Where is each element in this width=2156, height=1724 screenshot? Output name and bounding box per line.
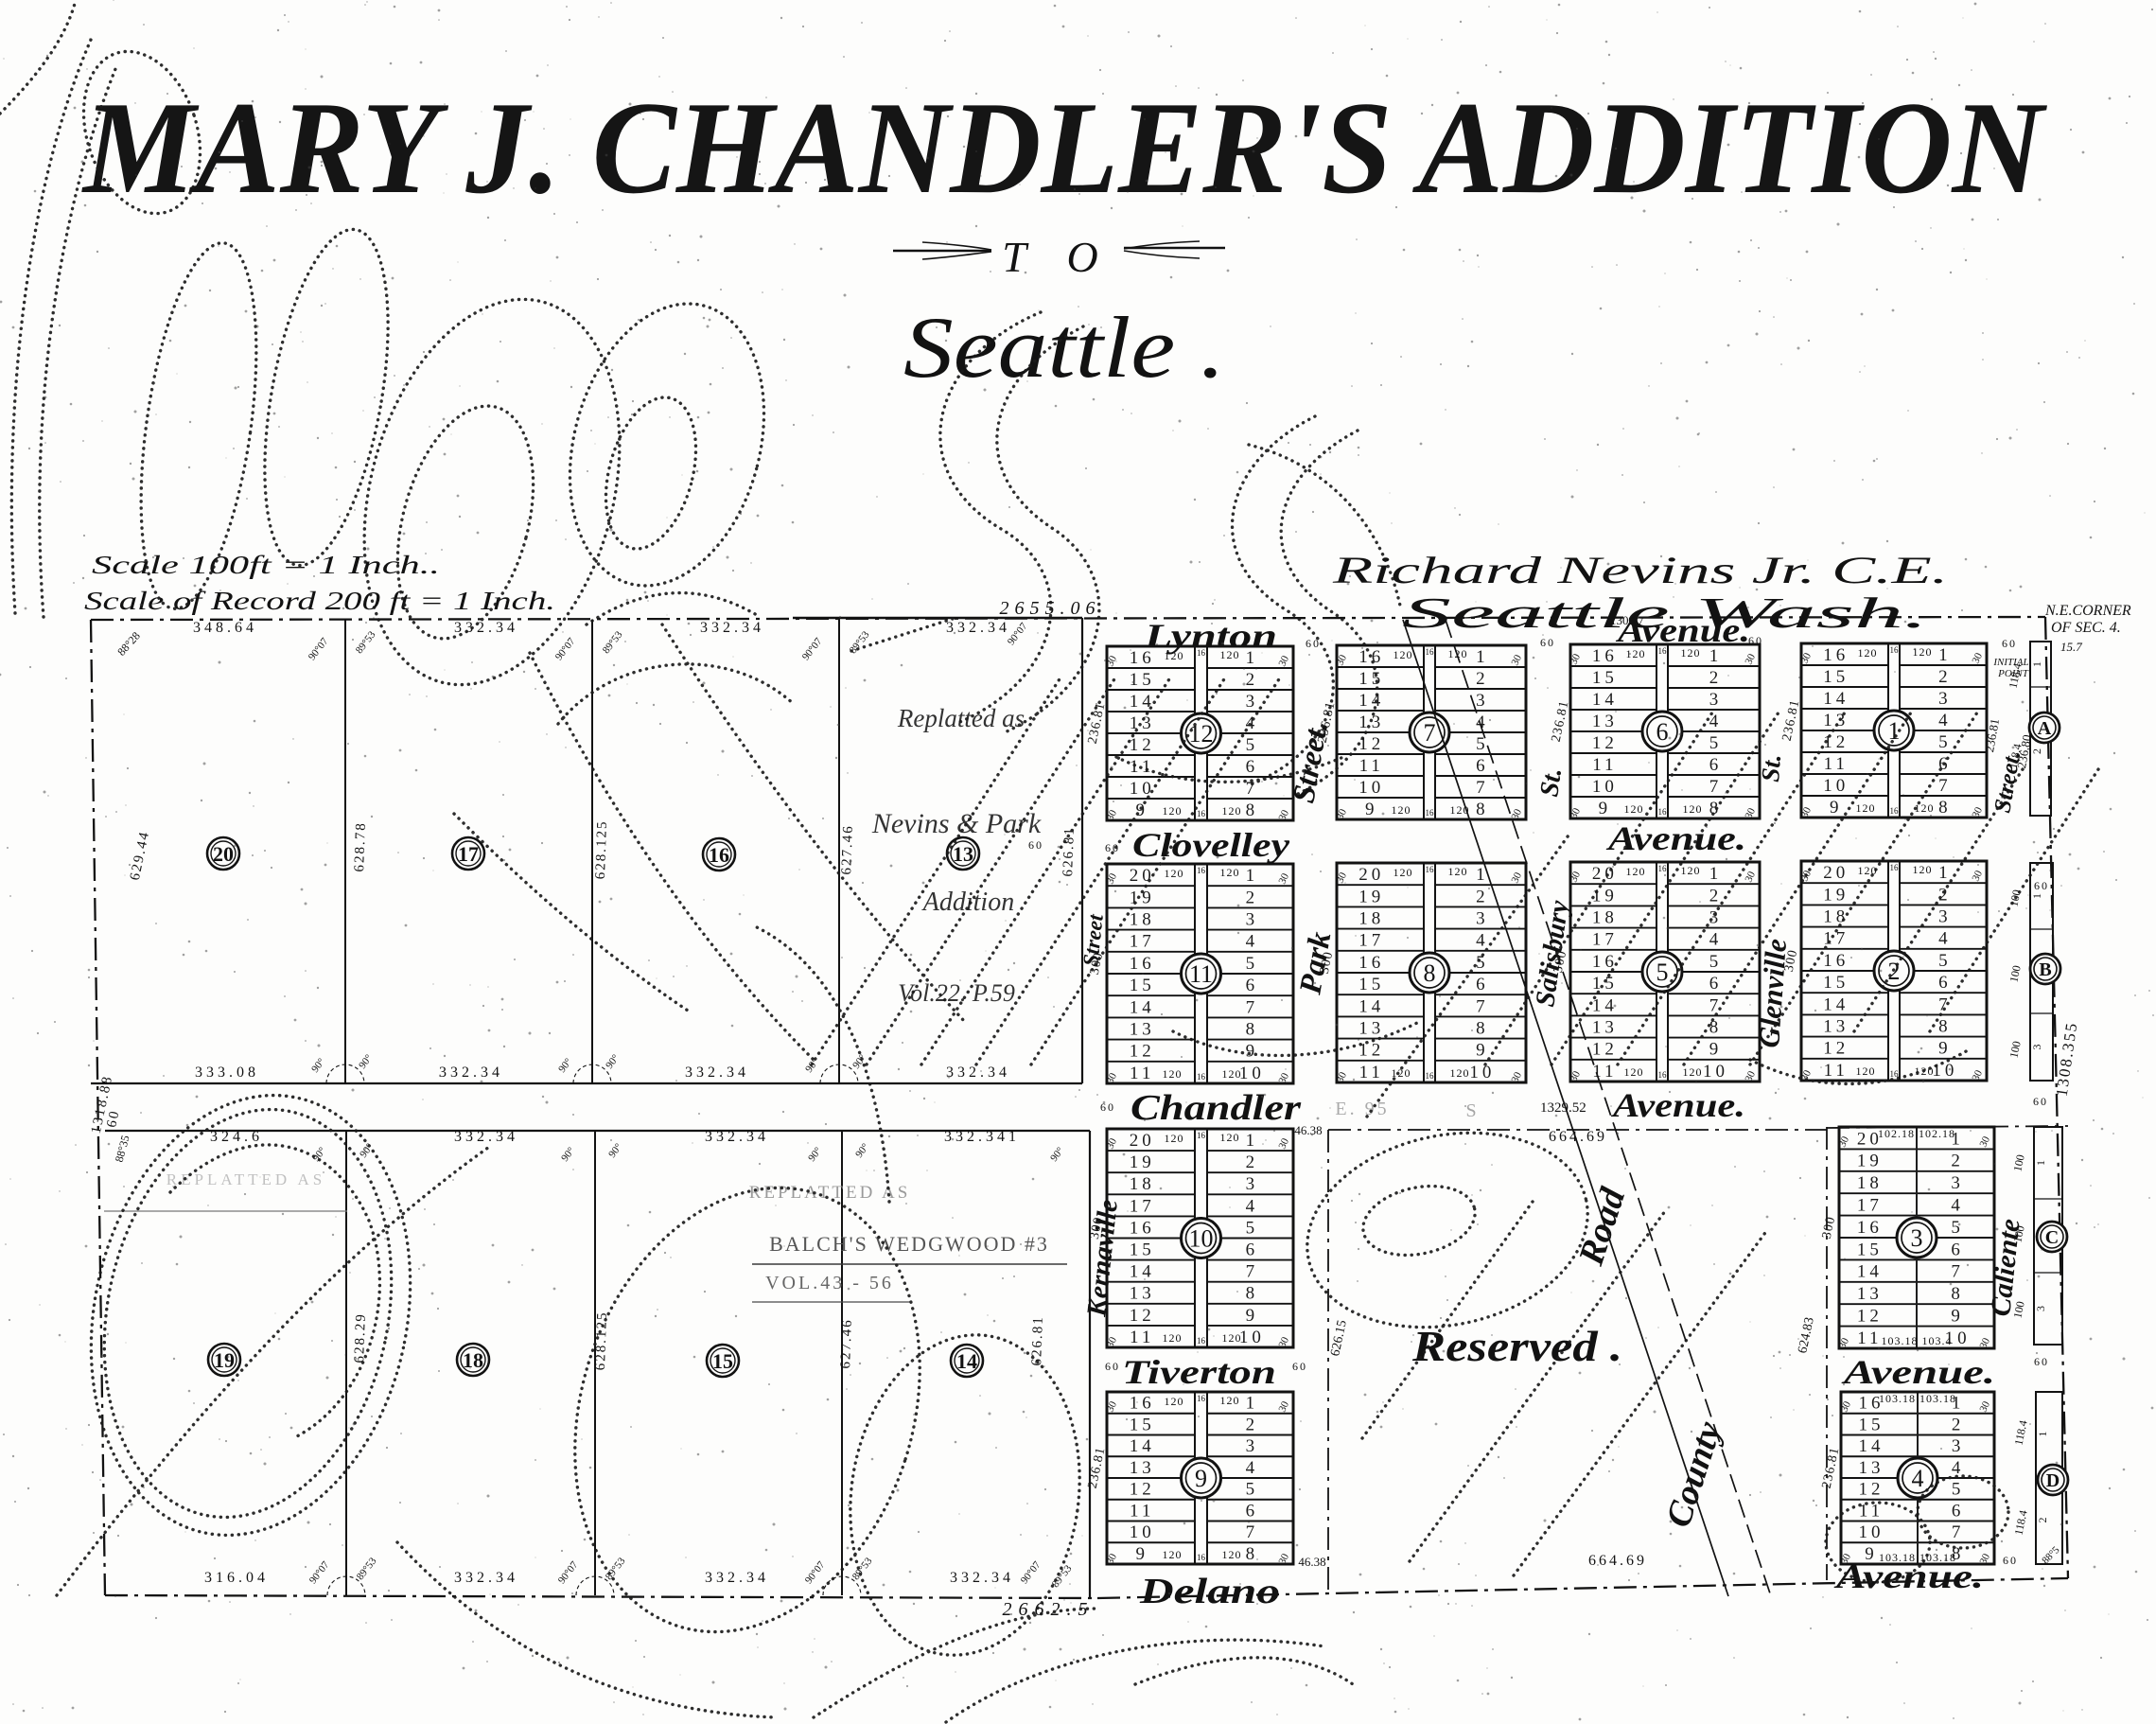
svg-text:15: 15: [1859, 1415, 1884, 1434]
svg-text:60: 60: [2033, 1095, 2048, 1108]
svg-text:8: 8: [1709, 1017, 1723, 1037]
svg-text:13: 13: [1592, 712, 1618, 731]
svg-text:E. 95: E. 95: [1335, 1099, 1389, 1119]
svg-text:16: 16: [1658, 807, 1668, 817]
svg-text:664.69: 664.69: [1588, 1553, 1647, 1569]
svg-text:16: 16: [1592, 646, 1618, 666]
svg-text:4: 4: [1246, 1458, 1259, 1478]
svg-text:REPLATTED AS: REPLATTED AS: [749, 1183, 911, 1203]
svg-text:120: 120: [1392, 803, 1411, 817]
svg-text:3: 3: [2030, 1045, 2043, 1050]
svg-text:6: 6: [1951, 1240, 1964, 1259]
svg-text:14: 14: [956, 1349, 977, 1373]
svg-text:16: 16: [1358, 953, 1384, 973]
svg-text:12: 12: [1130, 1042, 1155, 1062]
svg-text:120: 120: [1222, 1548, 1242, 1561]
svg-text:333.08: 333.08: [195, 1064, 259, 1081]
svg-text:10: 10: [1239, 1328, 1265, 1347]
svg-text:120: 120: [1163, 1331, 1183, 1345]
svg-text:120: 120: [1858, 646, 1878, 660]
svg-text:3: 3: [1246, 1174, 1259, 1194]
svg-text:2: 2: [1476, 887, 1489, 906]
svg-text:8: 8: [1938, 1016, 1952, 1036]
svg-text:10: 10: [1358, 778, 1384, 798]
svg-text:12: 12: [1130, 1306, 1155, 1326]
svg-text:3: 3: [1911, 1224, 1923, 1252]
svg-text:16: 16: [1197, 809, 1206, 818]
svg-text:16: 16: [1857, 1218, 1883, 1238]
svg-text:3: 3: [1951, 1173, 1964, 1193]
svg-text:16: 16: [1426, 865, 1435, 874]
svg-text:Richard Nevins Jr. C.E.: Richard Nevins Jr. C.E.: [1331, 549, 1948, 591]
svg-text:Replatted as: Replatted as: [897, 704, 1025, 732]
svg-text:3: 3: [1476, 908, 1489, 928]
svg-text:6: 6: [1709, 755, 1723, 775]
svg-text:3: 3: [1246, 692, 1259, 712]
svg-text:12: 12: [1823, 1039, 1849, 1059]
svg-text:628.125: 628.125: [593, 819, 610, 879]
svg-text:332.34: 332.34: [705, 1129, 769, 1145]
svg-text:12: 12: [1859, 1480, 1884, 1500]
svg-text:16: 16: [1890, 863, 1900, 872]
svg-text:18: 18: [1130, 909, 1155, 929]
svg-text:120: 120: [1913, 645, 1933, 659]
svg-text:16: 16: [1130, 1218, 1155, 1238]
svg-text:15: 15: [1358, 975, 1384, 994]
svg-text:120: 120: [1913, 863, 1933, 876]
svg-text:Addition: Addition: [921, 888, 1014, 917]
svg-text:10: 10: [1130, 1522, 1155, 1542]
svg-text:5: 5: [1951, 1218, 1964, 1238]
svg-text:8: 8: [1424, 959, 1436, 987]
svg-text:7: 7: [1938, 994, 1952, 1014]
svg-text:17: 17: [1130, 932, 1155, 952]
svg-text:120: 120: [1394, 866, 1413, 879]
svg-text:15: 15: [1130, 976, 1155, 995]
svg-text:332.34: 332.34: [454, 620, 518, 636]
svg-text:11: 11: [1824, 754, 1849, 774]
svg-text:14: 14: [1592, 690, 1618, 710]
svg-text:5: 5: [1246, 1218, 1259, 1238]
svg-text:120: 120: [1220, 1394, 1240, 1407]
svg-text:D: D: [2046, 1470, 2060, 1491]
svg-text:5: 5: [1938, 951, 1952, 971]
svg-text:9: 9: [1709, 1040, 1723, 1060]
svg-text:7: 7: [1951, 1262, 1964, 1282]
svg-text:2: 2: [1246, 1152, 1259, 1172]
svg-text:1: 1: [1709, 646, 1723, 666]
svg-text:120: 120: [1626, 647, 1646, 660]
svg-text:120: 120: [1220, 866, 1240, 879]
svg-text:120: 120: [1626, 865, 1646, 878]
svg-text:1: 1: [2034, 1160, 2047, 1166]
svg-text:120: 120: [1624, 1065, 1644, 1079]
svg-text:15: 15: [1130, 1415, 1155, 1434]
svg-text:348.64: 348.64: [193, 620, 257, 636]
svg-text:8: 8: [1938, 798, 1952, 818]
svg-text:332.34: 332.34: [454, 1570, 518, 1586]
svg-text:120: 120: [1681, 864, 1701, 877]
svg-text:Nevins & Park: Nevins & Park: [871, 808, 1042, 839]
svg-text:3: 3: [1938, 906, 1952, 926]
svg-text:120: 120: [1624, 802, 1644, 816]
svg-text:6: 6: [1246, 757, 1259, 777]
svg-text:1: 1: [1476, 865, 1489, 885]
svg-text:Avenue.: Avenue.: [1611, 1086, 1745, 1124]
svg-text:19: 19: [214, 1348, 235, 1372]
svg-text:3: 3: [2034, 1306, 2047, 1311]
svg-text:Lynton: Lynton: [1144, 617, 1277, 655]
svg-text:120: 120: [1683, 802, 1703, 816]
svg-text:10: 10: [1239, 1064, 1265, 1083]
svg-text:10: 10: [1859, 1522, 1884, 1542]
svg-text:103.18 103.4: 103.18 103.4: [1882, 1334, 1953, 1347]
svg-text:11: 11: [1359, 1063, 1384, 1082]
svg-text:8: 8: [1246, 1284, 1259, 1304]
svg-text:16: 16: [1823, 645, 1849, 665]
svg-text:15: 15: [1358, 669, 1384, 689]
svg-text:332.34: 332.34: [700, 620, 764, 636]
svg-text:7: 7: [1246, 1522, 1259, 1542]
svg-text:60: 60: [1292, 1360, 1307, 1373]
svg-text:11: 11: [1130, 1328, 1154, 1347]
svg-text:18: 18: [1130, 1174, 1155, 1194]
svg-text:17: 17: [458, 842, 479, 866]
svg-text:1: 1: [1246, 1131, 1259, 1151]
svg-text:7: 7: [1476, 996, 1489, 1016]
svg-text:4: 4: [1938, 929, 1952, 949]
svg-text:120: 120: [1915, 801, 1935, 815]
svg-text:60: 60: [2002, 637, 2017, 650]
svg-text:16: 16: [1197, 1131, 1206, 1140]
svg-text:628.78: 628.78: [352, 821, 369, 872]
svg-text:2: 2: [2036, 1518, 2049, 1523]
svg-text:120: 120: [1165, 867, 1184, 880]
svg-text:Chandler: Chandler: [1131, 1088, 1302, 1128]
svg-text:120: 120: [1858, 864, 1878, 877]
svg-text:16: 16: [1658, 1070, 1668, 1080]
svg-text:15: 15: [1130, 1240, 1155, 1260]
svg-text:19: 19: [1857, 1152, 1883, 1171]
svg-text:6: 6: [1938, 973, 1952, 993]
svg-text:120: 120: [1448, 865, 1468, 878]
svg-text:7: 7: [1709, 777, 1723, 797]
svg-text:17: 17: [1358, 931, 1384, 951]
svg-text:1: 1: [1246, 1394, 1259, 1414]
svg-text:17: 17: [1130, 1196, 1155, 1216]
svg-text:11: 11: [1130, 1064, 1154, 1083]
svg-text:1: 1: [1938, 863, 1952, 883]
svg-text:10: 10: [1130, 779, 1155, 799]
svg-text:2: 2: [1938, 667, 1952, 687]
svg-text:14: 14: [1358, 996, 1384, 1016]
svg-text:3: 3: [1709, 690, 1723, 710]
svg-text:MARY J. CHANDLER'S ADDITION: MARY J. CHANDLER'S ADDITION: [81, 75, 2048, 221]
svg-text:120: 120: [1394, 648, 1413, 661]
svg-text:18: 18: [1857, 1173, 1883, 1193]
svg-text:13: 13: [1358, 1018, 1384, 1038]
svg-text:332.34: 332.34: [685, 1064, 749, 1081]
svg-text:14: 14: [1823, 689, 1849, 709]
svg-text:19: 19: [1823, 885, 1849, 905]
svg-text:16: 16: [1426, 647, 1435, 657]
svg-text:332.34: 332.34: [950, 1570, 1014, 1586]
svg-text:103.18 103.18: 103.18 103.18: [1879, 1392, 1956, 1405]
svg-text:60: 60: [1540, 636, 1555, 649]
svg-text:14: 14: [1130, 1262, 1155, 1282]
svg-text:15: 15: [1857, 1240, 1883, 1259]
svg-text:T O: T O: [1002, 233, 1113, 281]
svg-text:16: 16: [1823, 951, 1849, 971]
svg-text:9: 9: [1951, 1306, 1964, 1326]
svg-text:4: 4: [1476, 931, 1489, 951]
svg-text:7: 7: [1952, 1522, 1965, 1542]
svg-text:60: 60: [1105, 1360, 1120, 1373]
svg-text:3: 3: [1246, 909, 1259, 929]
svg-text:16: 16: [1197, 1336, 1206, 1346]
svg-text:3: 3: [1938, 689, 1952, 709]
svg-text:13: 13: [1130, 713, 1155, 733]
svg-text:6: 6: [1246, 976, 1259, 995]
svg-text:8: 8: [1246, 1019, 1259, 1039]
svg-text:6: 6: [1952, 1501, 1965, 1521]
svg-text:A: A: [2038, 718, 2052, 739]
svg-text:14: 14: [1358, 691, 1384, 711]
svg-text:1: 1: [1709, 864, 1723, 884]
svg-text:20: 20: [1130, 1131, 1155, 1151]
svg-text:9: 9: [1135, 1544, 1148, 1564]
svg-text:5: 5: [1246, 735, 1259, 755]
svg-text:5: 5: [1952, 1480, 1965, 1500]
svg-text:16: 16: [709, 843, 729, 867]
svg-text:Vol.22. P.59: Vol.22. P.59: [898, 979, 1015, 1007]
svg-text:332.34: 332.34: [946, 620, 1010, 636]
svg-text:2: 2: [1709, 668, 1723, 688]
svg-text:Reserved .: Reserved .: [1411, 1322, 1622, 1370]
svg-text:VOL.43 - 56: VOL.43 - 56: [765, 1273, 894, 1293]
svg-text:15: 15: [1592, 974, 1618, 994]
svg-text:15.7: 15.7: [2060, 640, 2082, 654]
svg-text:N.E.CORNER: N.E.CORNER: [2044, 603, 2131, 619]
svg-text:20: 20: [1130, 866, 1155, 886]
svg-text:2: 2: [1246, 670, 1259, 690]
svg-text:14: 14: [1130, 1436, 1155, 1456]
svg-text:14: 14: [1857, 1262, 1883, 1282]
svg-text:2: 2: [1951, 1152, 1964, 1171]
svg-text:Clovelley: Clovelley: [1132, 826, 1290, 864]
svg-text:13: 13: [1857, 1284, 1883, 1304]
svg-text:Avenue.: Avenue.: [1841, 1353, 1995, 1391]
svg-text:60: 60: [1100, 1100, 1115, 1114]
svg-text:17: 17: [1592, 930, 1618, 950]
svg-text:20: 20: [213, 842, 234, 866]
svg-text:627.46: 627.46: [839, 824, 856, 875]
svg-text:11: 11: [1359, 756, 1384, 776]
svg-text:1: 1: [1476, 647, 1489, 667]
svg-text:14: 14: [1130, 997, 1155, 1017]
svg-text:18: 18: [463, 1348, 483, 1372]
svg-text:15: 15: [1592, 668, 1618, 688]
svg-text:6: 6: [1476, 975, 1489, 994]
svg-text:16: 16: [1890, 645, 1900, 655]
svg-text:15: 15: [1823, 667, 1849, 687]
svg-text:120: 120: [1220, 1131, 1240, 1144]
svg-text:6: 6: [1709, 974, 1723, 994]
svg-text:16: 16: [1130, 1394, 1155, 1414]
svg-text:4: 4: [1938, 711, 1952, 730]
svg-text:7: 7: [1709, 995, 1723, 1015]
svg-text:16: 16: [1197, 1553, 1206, 1562]
svg-text:627.46: 627.46: [838, 1318, 855, 1369]
svg-text:1: 1: [1938, 645, 1952, 665]
svg-text:9: 9: [1135, 800, 1148, 820]
svg-text:11: 11: [1824, 1061, 1849, 1081]
svg-text:Avenue.: Avenue.: [1616, 611, 1750, 649]
svg-text:11: 11: [1857, 1328, 1882, 1348]
svg-text:120: 120: [1683, 1065, 1703, 1079]
svg-text:1: 1: [2036, 1432, 2049, 1437]
svg-text:19: 19: [1592, 886, 1618, 906]
svg-text:2: 2: [1709, 886, 1723, 906]
svg-text:St.: St.: [1756, 753, 1786, 783]
svg-text:3: 3: [1952, 1436, 1965, 1456]
svg-text:16: 16: [1658, 864, 1668, 873]
svg-text:626.81: 626.81: [1060, 826, 1078, 877]
svg-text:2: 2: [1246, 888, 1259, 907]
svg-text:12: 12: [1857, 1306, 1883, 1326]
svg-text:10: 10: [1823, 776, 1849, 796]
svg-text:11: 11: [1130, 1501, 1154, 1521]
svg-text:60: 60: [2003, 1554, 2018, 1567]
svg-text:10: 10: [1932, 1061, 1957, 1081]
svg-text:19: 19: [1130, 1152, 1155, 1172]
svg-text:5: 5: [1246, 954, 1259, 974]
svg-text:4: 4: [1912, 1465, 1924, 1492]
svg-text:16: 16: [1890, 806, 1900, 816]
svg-text:120: 120: [1163, 1067, 1183, 1081]
svg-text:13: 13: [1130, 1458, 1155, 1478]
svg-text:332.341: 332.341: [944, 1129, 1020, 1145]
svg-text:60: 60: [2034, 1355, 2049, 1368]
svg-text:12: 12: [1592, 1040, 1618, 1060]
svg-text:7: 7: [1246, 997, 1259, 1017]
svg-text:5: 5: [1938, 732, 1952, 752]
svg-text:1: 1: [1246, 866, 1259, 886]
svg-text:332.34: 332.34: [454, 1129, 518, 1145]
svg-text:15: 15: [712, 1349, 733, 1373]
svg-text:120: 120: [1222, 1067, 1242, 1081]
svg-text:C: C: [2045, 1227, 2059, 1248]
svg-text:11: 11: [1189, 960, 1213, 988]
svg-text:5: 5: [1476, 734, 1489, 754]
svg-text:B: B: [2039, 959, 2051, 980]
svg-text:14: 14: [1823, 994, 1849, 1014]
svg-text:120: 120: [1856, 1064, 1876, 1078]
svg-text:6: 6: [1656, 718, 1669, 746]
svg-text:120: 120: [1222, 1331, 1242, 1345]
svg-text:120: 120: [1856, 801, 1876, 815]
svg-text:9: 9: [1938, 1039, 1952, 1059]
svg-text:6: 6: [1246, 1501, 1259, 1521]
svg-text:3: 3: [1246, 1436, 1259, 1456]
svg-text:S: S: [1465, 1100, 1476, 1121]
svg-text:60: 60: [2034, 879, 2049, 892]
svg-text:15: 15: [1823, 973, 1849, 993]
svg-text:120: 120: [1450, 1066, 1470, 1080]
svg-text:Avenue.: Avenue.: [1606, 819, 1746, 857]
svg-text:4: 4: [1951, 1195, 1964, 1215]
svg-text:8: 8: [1246, 1544, 1259, 1564]
svg-text:13: 13: [1358, 712, 1384, 732]
svg-text:8: 8: [1246, 800, 1259, 820]
svg-text:9: 9: [1476, 1041, 1489, 1061]
svg-text:20: 20: [1823, 863, 1849, 883]
svg-text:1: 1: [2030, 661, 2043, 667]
svg-text:120: 120: [1163, 804, 1183, 818]
svg-text:2: 2: [1476, 669, 1489, 689]
svg-text:9: 9: [1195, 1465, 1207, 1492]
svg-text:18: 18: [1592, 907, 1618, 927]
svg-text:16: 16: [1197, 1072, 1206, 1082]
svg-text:60: 60: [1028, 838, 1043, 852]
svg-text:4: 4: [1246, 932, 1259, 952]
svg-text:5: 5: [1709, 952, 1723, 972]
svg-text:16: 16: [1426, 808, 1435, 818]
svg-text:Avenue.: Avenue.: [1833, 1557, 1984, 1595]
svg-text:8: 8: [1476, 800, 1489, 819]
svg-text:13: 13: [1592, 1017, 1618, 1037]
svg-text:120: 120: [1222, 804, 1242, 818]
svg-text:11: 11: [1592, 1062, 1617, 1082]
svg-text:13: 13: [1130, 1284, 1155, 1304]
svg-text:16: 16: [1197, 1394, 1206, 1403]
svg-text:12: 12: [1130, 1480, 1155, 1500]
svg-text:4: 4: [1246, 1196, 1259, 1216]
svg-text:10: 10: [1189, 1225, 1214, 1253]
svg-text:120: 120: [1163, 1548, 1183, 1561]
svg-text:14: 14: [1859, 1436, 1884, 1456]
svg-text:2: 2: [1952, 1415, 1965, 1434]
svg-text:9: 9: [1599, 799, 1612, 818]
svg-text:9: 9: [1830, 798, 1843, 818]
svg-text:7: 7: [1938, 776, 1952, 796]
svg-text:332.34: 332.34: [705, 1570, 769, 1586]
svg-text:18: 18: [1358, 908, 1384, 928]
svg-text:15: 15: [1130, 670, 1155, 690]
svg-text:8: 8: [1476, 1018, 1489, 1038]
svg-text:16: 16: [1426, 1071, 1435, 1081]
svg-text:13: 13: [1823, 1016, 1849, 1036]
svg-text:BALCH'S WEDGWOOD #3: BALCH'S WEDGWOOD #3: [769, 1232, 1049, 1256]
svg-text:6: 6: [1476, 756, 1489, 776]
svg-text:46.38: 46.38: [1294, 1123, 1322, 1137]
svg-text:11: 11: [1592, 755, 1617, 775]
svg-text:102.18 102.18: 102.18 102.18: [1878, 1127, 1955, 1140]
svg-text:13: 13: [1859, 1458, 1884, 1478]
svg-text:16: 16: [1197, 866, 1206, 875]
svg-text:19: 19: [1358, 887, 1384, 906]
svg-text:8: 8: [1951, 1284, 1964, 1304]
svg-text:12: 12: [1358, 1041, 1384, 1061]
svg-text:12: 12: [1130, 735, 1155, 755]
svg-text:5: 5: [1246, 1480, 1259, 1500]
svg-text:120: 120: [1165, 1132, 1184, 1145]
svg-text:5: 5: [1709, 733, 1723, 753]
svg-text:10: 10: [1592, 777, 1618, 797]
svg-text:2: 2: [2030, 748, 2043, 754]
svg-text:OF SEC. 4.: OF SEC. 4.: [2051, 620, 2121, 636]
svg-text:Delano: Delano: [1139, 1572, 1280, 1611]
